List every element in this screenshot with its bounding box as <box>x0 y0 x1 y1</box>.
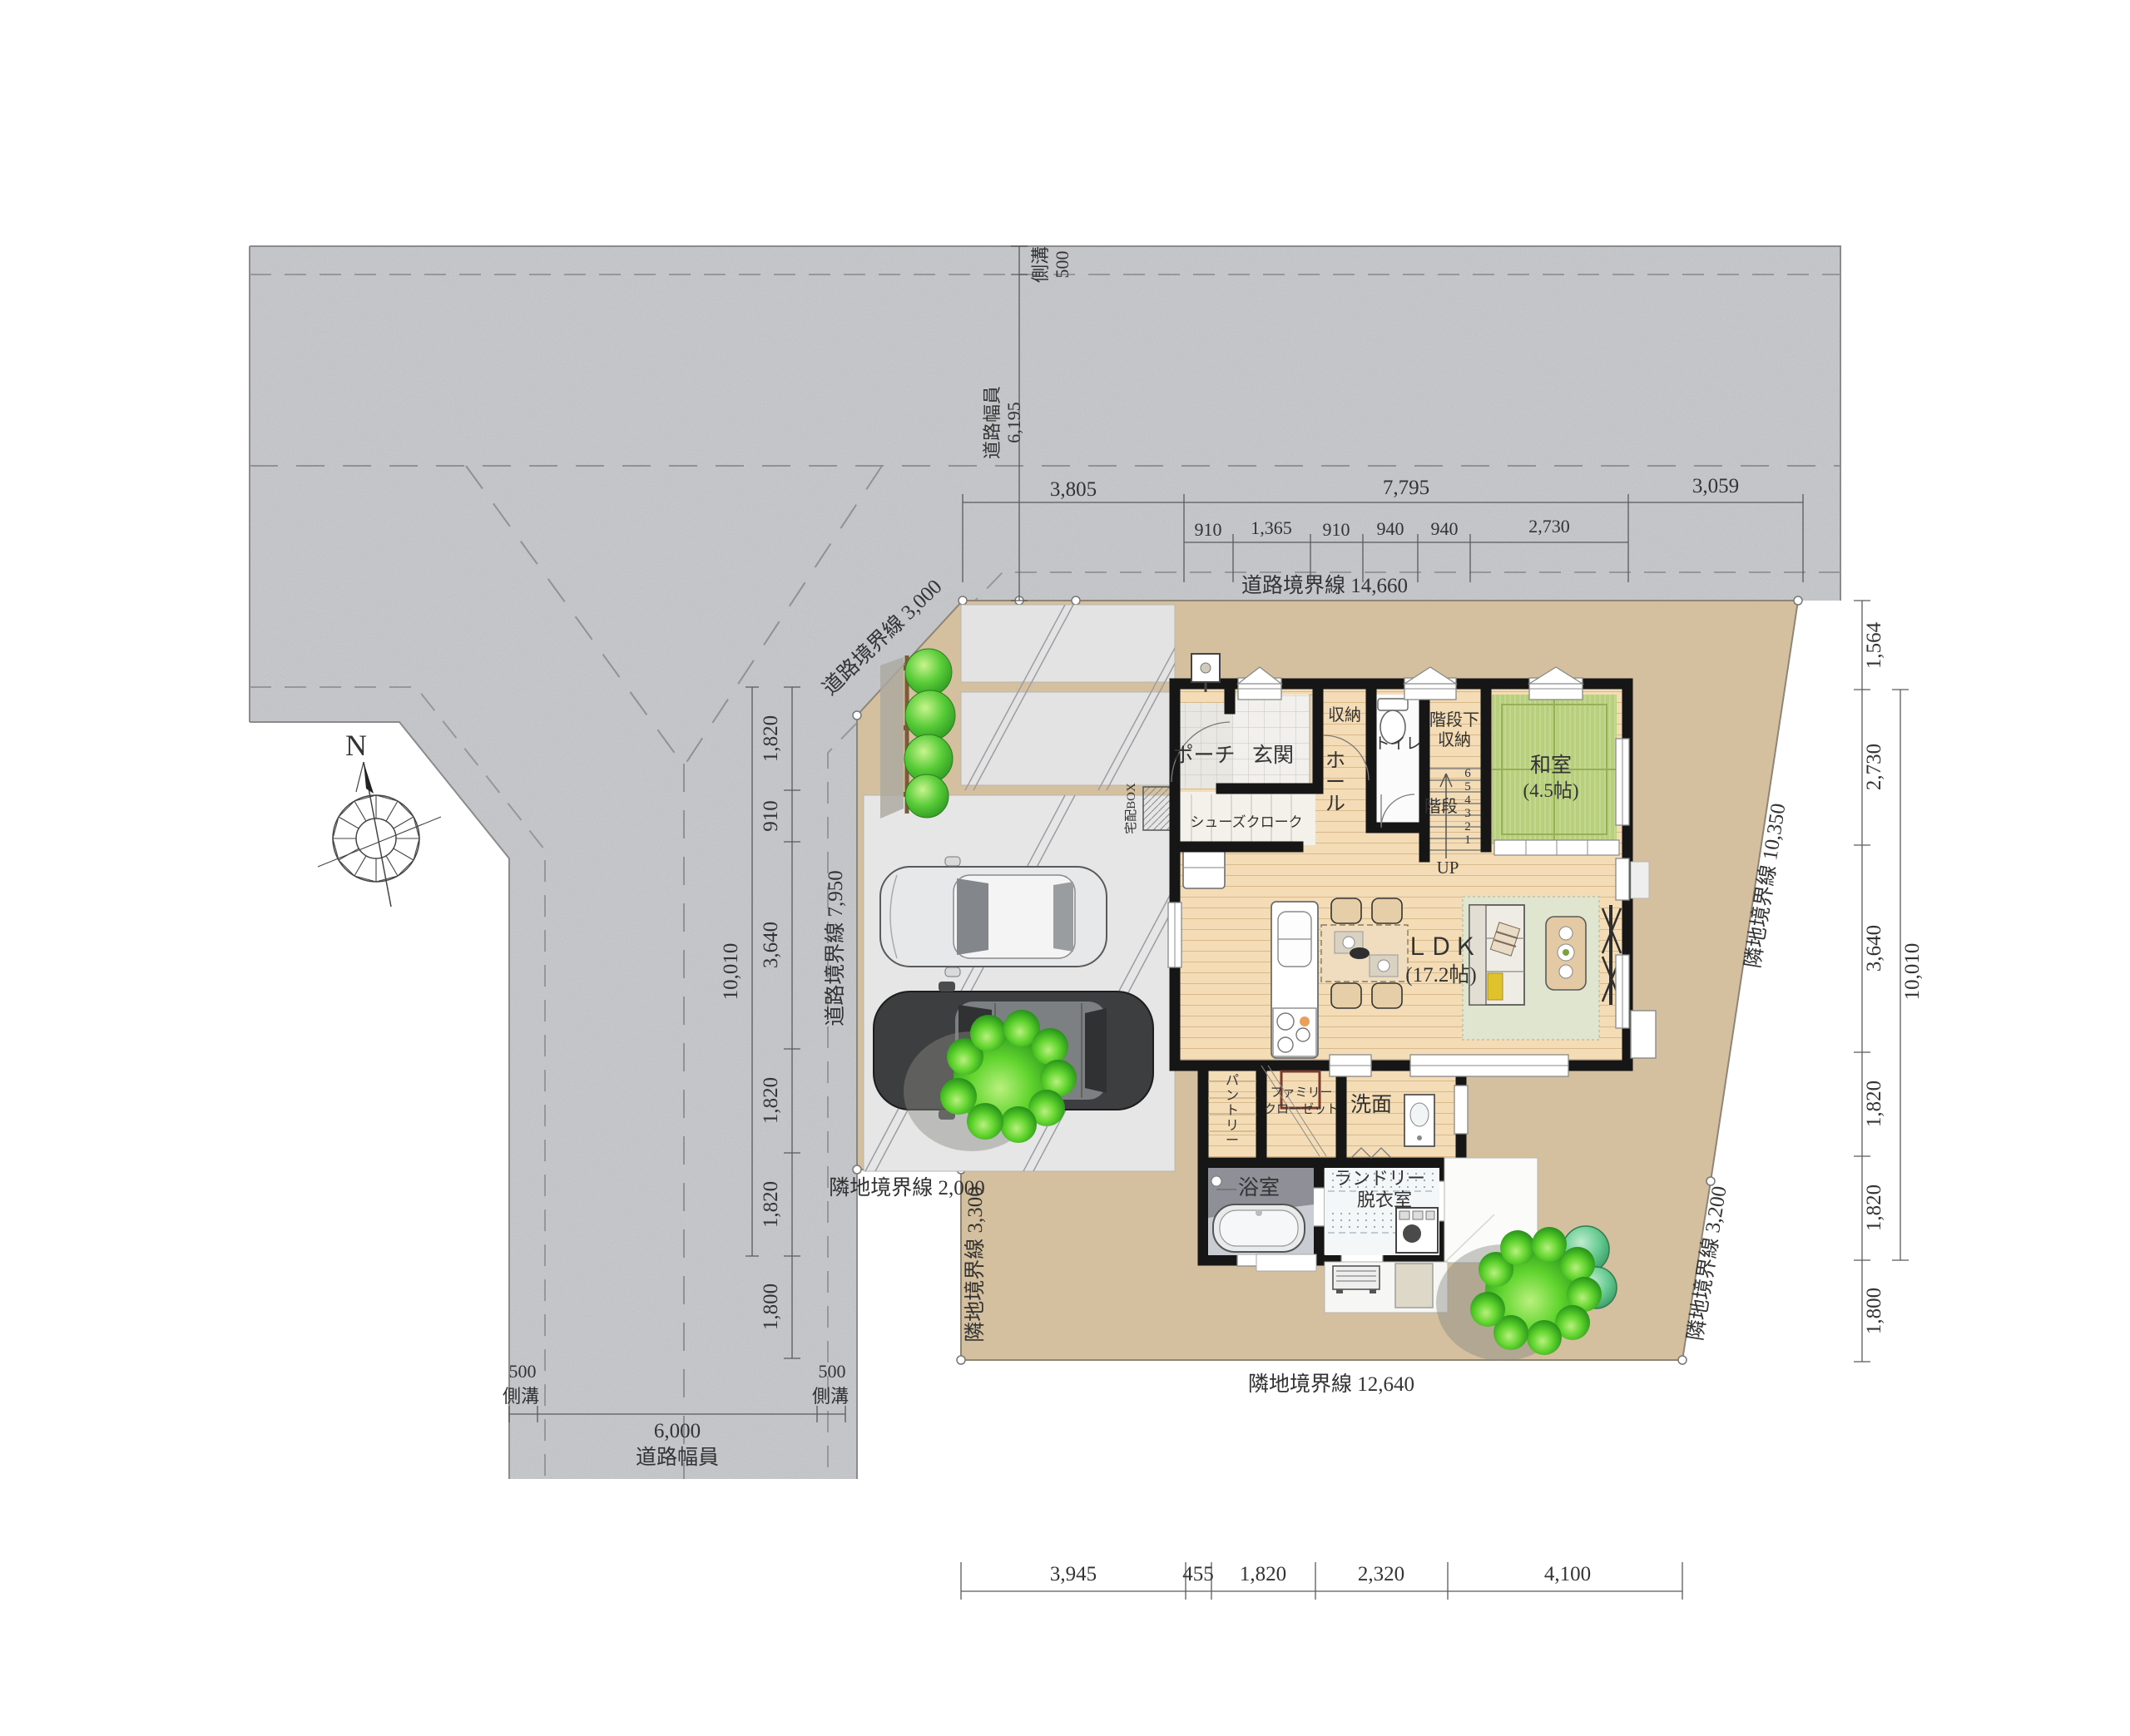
label-ldk-size: (17.2帖) <box>1405 963 1476 987</box>
dim-2730: 2,730 <box>1528 516 1570 537</box>
svg-text:ン: ン <box>1226 1089 1239 1103</box>
label-hall: ホ ー ル <box>1325 750 1345 815</box>
dim-top-3805: 3,805 <box>1050 478 1097 501</box>
gutter-bl-value: 500 <box>509 1361 537 1382</box>
gutter-br-value: 500 <box>819 1361 846 1382</box>
bath-step <box>1256 1254 1316 1271</box>
label-laundry-2: 脱衣室 <box>1357 1189 1412 1210</box>
washroom-vanity <box>1404 1095 1434 1146</box>
dim-right-3640: 3,640 <box>1863 925 1885 972</box>
sofa <box>1469 905 1524 1005</box>
label-porch: ポーチ <box>1172 744 1235 767</box>
sofa-cushion-yellow <box>1488 973 1503 1000</box>
dim-left-total: 10,010 <box>720 943 742 1001</box>
svg-text:ル: ル <box>1325 794 1345 815</box>
car-dark-rear-window <box>1085 1008 1107 1093</box>
dim-left-1820a: 1,820 <box>760 715 782 762</box>
dim-bottom-3945: 3,945 <box>1050 1563 1097 1585</box>
bnd-road-north: 道路境界線 14,660 <box>1241 574 1408 597</box>
label-washitsu: 和室 <box>1530 754 1572 777</box>
svg-text:2: 2 <box>1464 820 1471 833</box>
dim-940b: 940 <box>1431 518 1459 539</box>
svg-text:ー: ー <box>1226 1134 1239 1148</box>
car-silver-rear-window <box>1053 882 1073 952</box>
label-under-stair-1: 階段下 <box>1429 710 1479 730</box>
road-width-bottom-value: 6,000 <box>654 1420 701 1442</box>
car-silver-mirror-bottom <box>945 967 960 977</box>
label-closet: 収納 <box>1328 705 1361 725</box>
label-stairs: 階段 <box>1424 797 1458 816</box>
svg-text:6: 6 <box>1464 767 1471 780</box>
svg-text:4: 4 <box>1464 794 1471 807</box>
dim-left-910: 910 <box>760 800 782 832</box>
bnd-neighbor-south: 隣地境界線 12,640 <box>1248 1372 1414 1396</box>
label-laundry-1: ランドリー <box>1334 1168 1425 1189</box>
road-width-bottom-label: 道路幅員 <box>636 1446 719 1469</box>
label-entrance: 玄関 <box>1252 744 1294 767</box>
label-up: UP <box>1437 858 1459 878</box>
dim-bottom-4100: 4,100 <box>1544 1563 1591 1585</box>
value-gutter-top: 500 <box>1052 251 1072 279</box>
svg-text:ー: ー <box>1325 772 1345 794</box>
label-toilet: トイレ <box>1374 735 1421 753</box>
gutter-bl-label: 側溝 <box>503 1386 539 1407</box>
site-plan-drawing: 宅配BOX <box>0 0 2130 1732</box>
dim-bottom-455: 455 <box>1182 1563 1214 1585</box>
car-dark-mirror-top <box>939 982 955 992</box>
planting-shadow <box>880 657 904 819</box>
bnd-neighbor-west: 隣地境界線 3,300 <box>963 1186 987 1343</box>
label-washroom: 洗面 <box>1350 1093 1392 1116</box>
gutter-br-label: 側溝 <box>812 1386 849 1407</box>
label-ldk: ＬＤＫ <box>1404 934 1477 961</box>
svg-text:パ: パ <box>1226 1074 1239 1088</box>
dim-top-7795: 7,795 <box>1383 477 1429 499</box>
bnd-road-west: 道路境界線 7,950 <box>824 870 847 1026</box>
dim-right-2730: 2,730 <box>1863 744 1885 790</box>
dim-bottom-2320: 2,320 <box>1358 1563 1404 1585</box>
ac-unit-east <box>1631 1011 1656 1058</box>
table-decor <box>1350 947 1370 959</box>
dim-left-3640: 3,640 <box>760 922 782 968</box>
svg-text:3: 3 <box>1464 807 1471 820</box>
water-heater-tank <box>1395 1264 1433 1308</box>
dim-940a: 940 <box>1377 518 1404 539</box>
label-road-width-top: 道路幅員 <box>982 386 1003 459</box>
north-label: N <box>345 729 367 762</box>
dim-left-1820c: 1,820 <box>760 1181 782 1228</box>
label-shoes-closet: シューズクローク <box>1190 814 1302 830</box>
car-silver <box>880 857 1107 977</box>
label-washitsu-size: (4.5帖) <box>1523 780 1578 801</box>
label-under-stair-2: 収納 <box>1438 730 1471 749</box>
label-bathroom: 浴室 <box>1238 1176 1280 1199</box>
outdoor-equipment-pad <box>1325 1262 1448 1313</box>
ac-outdoor-unit <box>1333 1266 1380 1293</box>
label-gutter-top: 側溝 <box>1030 246 1051 283</box>
dim-right-1800: 1,800 <box>1863 1288 1885 1334</box>
value-road-width-top: 6,195 <box>1003 402 1024 443</box>
dim-bottom-1820: 1,820 <box>1240 1563 1286 1585</box>
label-pantry: パ ン ト リ ー <box>1226 1074 1239 1148</box>
washing-machine <box>1396 1208 1438 1253</box>
dim-left-1820b: 1,820 <box>760 1077 782 1124</box>
dim-right-total: 10,010 <box>1901 943 1924 1001</box>
dim-910b: 910 <box>1323 519 1350 540</box>
delivery-box-label: 宅配BOX <box>1124 783 1138 834</box>
svg-text:5: 5 <box>1464 780 1471 794</box>
stair-numbers: 6 5 4 3 2 1 <box>1464 767 1471 847</box>
dim-right-1820a: 1,820 <box>1863 1081 1885 1127</box>
svg-text:ホ: ホ <box>1325 750 1345 772</box>
label-family-closet-2: クローゼット <box>1264 1102 1339 1116</box>
svg-text:ト: ト <box>1226 1104 1239 1118</box>
walkway-slab-upper <box>961 605 1175 682</box>
dim-left-1800: 1,800 <box>760 1283 782 1330</box>
svg-text:1: 1 <box>1464 833 1471 847</box>
coffee-table <box>1546 917 1586 990</box>
svg-text:リ: リ <box>1226 1119 1239 1133</box>
east-door-step <box>1631 862 1649 898</box>
dim-top-3059: 3,059 <box>1692 475 1739 497</box>
car-silver-mirror-top <box>945 857 960 866</box>
bnd-neighbor-step: 隣地境界線 2,000 <box>829 1176 985 1199</box>
dim-right-1564: 1,564 <box>1863 621 1885 669</box>
dim-910a: 910 <box>1195 519 1222 540</box>
dim-1365: 1,365 <box>1251 517 1292 538</box>
dim-right-1820b: 1,820 <box>1863 1185 1885 1231</box>
label-family-closet-1: ファミリー <box>1270 1086 1332 1100</box>
car-silver-windshield <box>957 878 988 955</box>
